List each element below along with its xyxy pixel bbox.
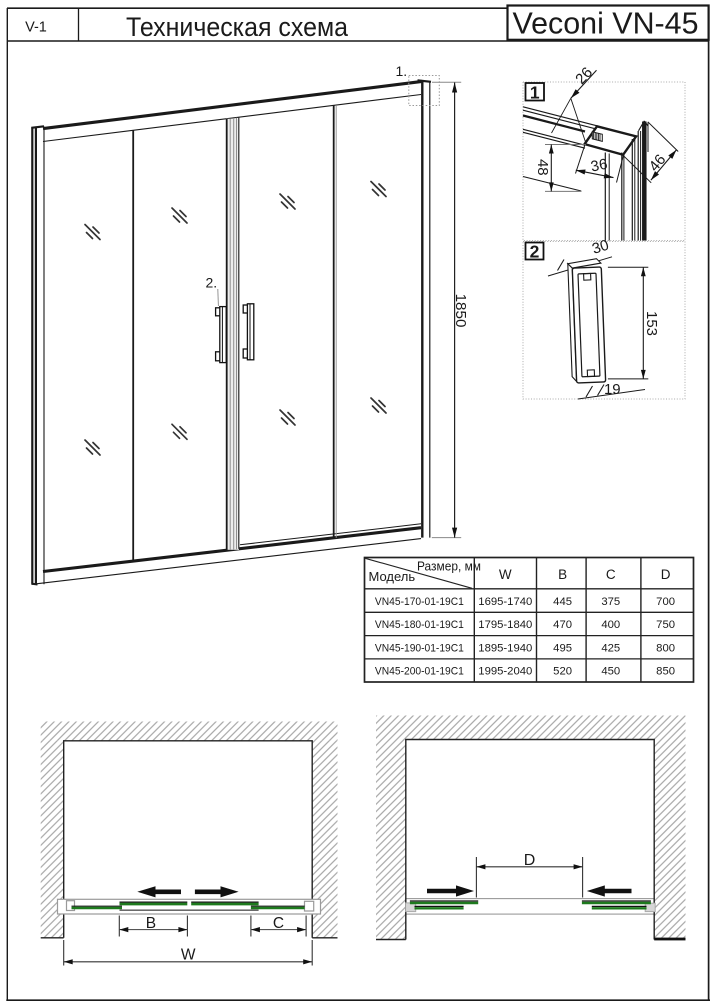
svg-text:C: C — [273, 915, 284, 932]
svg-text:375: 375 — [601, 596, 620, 608]
svg-text:2.: 2. — [206, 275, 218, 291]
svg-text:470: 470 — [553, 619, 572, 631]
svg-text:750: 750 — [656, 619, 675, 631]
svg-text:1.: 1. — [396, 63, 408, 79]
svg-text:2: 2 — [530, 241, 540, 261]
svg-text:W: W — [499, 567, 512, 582]
svg-text:Модель: Модель — [369, 569, 416, 584]
svg-text:425: 425 — [601, 643, 620, 655]
svg-text:400: 400 — [601, 619, 620, 631]
svg-text:VN45-190-01-19C1: VN45-190-01-19C1 — [375, 643, 464, 655]
svg-text:700: 700 — [656, 596, 675, 608]
svg-text:Veconi VN-45: Veconi VN-45 — [513, 7, 699, 41]
svg-text:1795-1840: 1795-1840 — [478, 619, 532, 631]
svg-text:36: 36 — [589, 156, 609, 176]
svg-text:D: D — [661, 567, 671, 582]
svg-text:850: 850 — [656, 666, 675, 678]
svg-text:VN45-170-01-19C1: VN45-170-01-19C1 — [375, 596, 464, 608]
svg-text:1995-2040: 1995-2040 — [478, 666, 532, 678]
svg-text:450: 450 — [601, 666, 620, 678]
svg-text:D: D — [524, 852, 536, 869]
svg-text:26: 26 — [572, 64, 596, 88]
svg-text:48: 48 — [534, 159, 551, 176]
svg-text:VN45-200-01-19C1: VN45-200-01-19C1 — [375, 666, 464, 678]
svg-text:46: 46 — [646, 151, 670, 175]
svg-text:800: 800 — [656, 643, 675, 655]
svg-text:30: 30 — [590, 237, 611, 258]
svg-text:B: B — [558, 567, 567, 582]
svg-text:1850: 1850 — [452, 294, 469, 328]
svg-text:19: 19 — [604, 381, 621, 398]
svg-text:445: 445 — [553, 596, 572, 608]
svg-text:1: 1 — [530, 82, 540, 102]
svg-text:B: B — [146, 915, 156, 932]
svg-text:495: 495 — [553, 643, 572, 655]
svg-text:Техническая схема: Техническая схема — [126, 12, 348, 42]
svg-text:1695-1740: 1695-1740 — [478, 596, 532, 608]
svg-text:C: C — [606, 567, 616, 582]
svg-text:Размер, мм: Размер, мм — [417, 559, 481, 574]
svg-text:VN45-180-01-19C1: VN45-180-01-19C1 — [375, 619, 464, 631]
svg-text:1895-1940: 1895-1940 — [478, 643, 532, 655]
svg-text:153: 153 — [643, 311, 660, 336]
svg-text:520: 520 — [553, 666, 572, 678]
svg-text:W: W — [181, 947, 196, 964]
svg-text:V-1: V-1 — [25, 20, 47, 36]
